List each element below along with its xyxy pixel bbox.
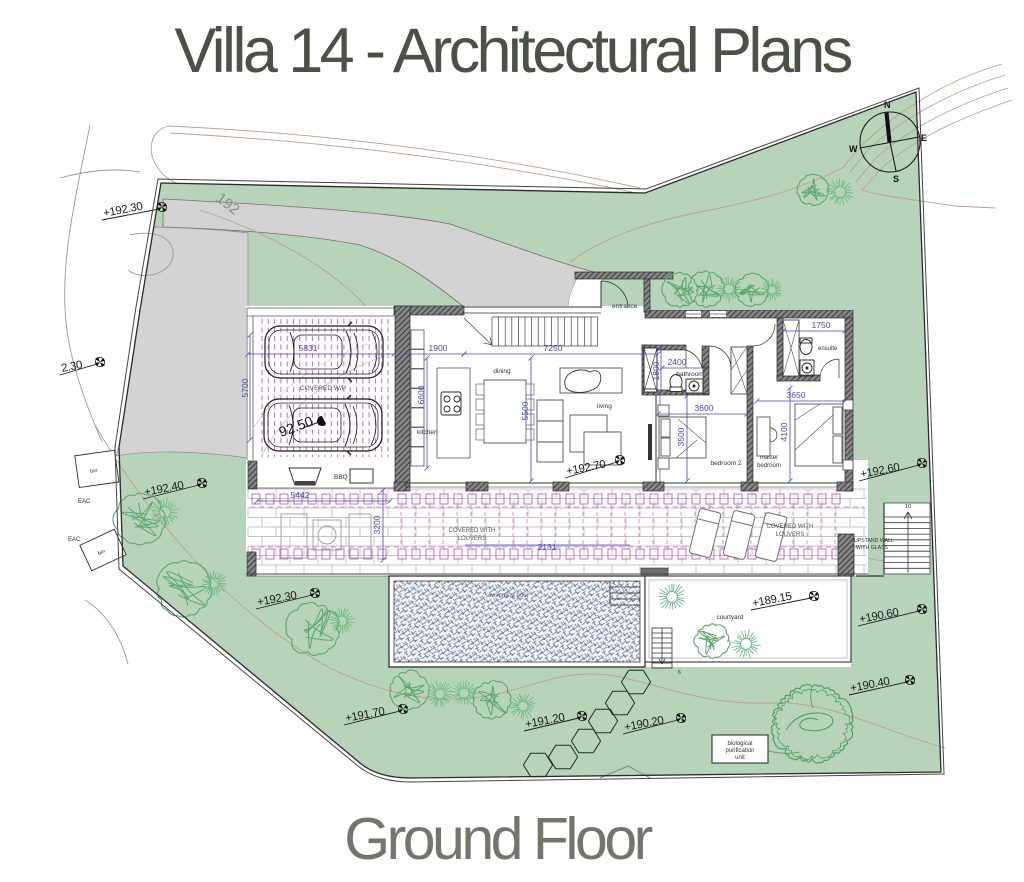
svg-text:unit: unit [735, 755, 745, 761]
svg-text:5700: 5700 [240, 378, 250, 397]
svg-text:master: master [760, 455, 778, 461]
svg-text:purification: purification [725, 748, 754, 754]
svg-text:3650: 3650 [787, 390, 806, 400]
svg-text:1900: 1900 [429, 343, 448, 353]
svg-text:ensuite: ensuite [818, 346, 838, 352]
svg-text:5442: 5442 [291, 490, 310, 500]
svg-text:6: 6 [678, 670, 681, 676]
svg-text:LOUVERS: LOUVERS [458, 536, 487, 542]
svg-text:3600: 3600 [695, 403, 714, 413]
svg-text:COVERED WITH: COVERED WITH [449, 528, 496, 534]
svg-text:10: 10 [905, 504, 911, 510]
svg-text:6600: 6600 [416, 385, 426, 404]
svg-text:biological: biological [727, 741, 752, 747]
svg-text:3500: 3500 [676, 427, 686, 446]
svg-text:bathroom: bathroom [676, 371, 703, 378]
svg-text:Ground Floor: Ground Floor [344, 806, 652, 872]
svg-text:entrance: entrance [612, 303, 638, 310]
svg-text:bin: bin [90, 468, 98, 475]
svg-text:EAC: EAC [68, 537, 81, 543]
svg-text:S: S [893, 174, 899, 184]
svg-text:EAC: EAC [78, 499, 91, 505]
svg-text:5500: 5500 [520, 401, 530, 420]
svg-text:BBQ: BBQ [334, 474, 348, 481]
svg-text:W: W [849, 144, 858, 154]
svg-text:3200: 3200 [372, 515, 382, 534]
svg-text:7250: 7250 [544, 343, 563, 353]
svg-text:2400: 2400 [668, 357, 687, 367]
svg-text:courtyard: courtyard [716, 614, 743, 621]
svg-text:dining: dining [493, 368, 511, 375]
svg-text:living: living [597, 403, 612, 410]
svg-text:COVERED WITH: COVERED WITH [767, 524, 814, 530]
svg-text:COVERED W/P: COVERED W/P [300, 385, 346, 392]
svg-text:bedroom 2: bedroom 2 [710, 460, 741, 467]
svg-text:bedroom: bedroom [757, 463, 781, 469]
svg-text:WITH GLASS: WITH GLASS [856, 545, 889, 551]
svg-text:LOUVERS: LOUVERS [776, 532, 805, 538]
svg-text:UPSTAND WALL: UPSTAND WALL [854, 538, 894, 544]
svg-text:E: E [921, 133, 927, 143]
svg-text:kitchen: kitchen [417, 429, 438, 436]
svg-text:2131: 2131 [538, 542, 557, 552]
svg-text:swimming pool: swimming pool [488, 593, 528, 599]
svg-text:4100: 4100 [779, 422, 789, 441]
svg-text:5831: 5831 [299, 343, 318, 353]
svg-text:Villa 14 - Architectural Plans: Villa 14 - Architectural Plans [174, 16, 851, 86]
svg-text:1800: 1800 [651, 361, 661, 380]
svg-text:1750: 1750 [812, 320, 831, 330]
